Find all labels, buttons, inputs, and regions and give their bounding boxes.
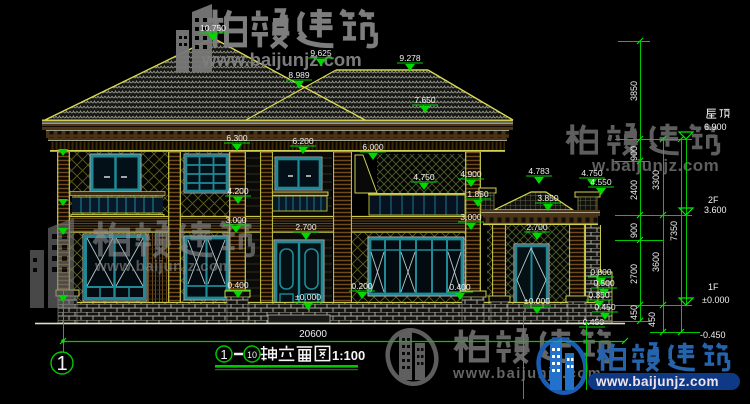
svg-text:6.000: 6.000 [362,142,384,152]
svg-text:3850: 3850 [629,81,639,101]
svg-text:1F: 1F [708,282,719,292]
svg-text:450: 450 [629,305,639,320]
svg-text:4.200: 4.200 [227,186,249,196]
svg-text:4.750: 4.750 [413,172,435,182]
svg-text:±0.000: ±0.000 [702,295,729,305]
svg-text:0.400: 0.400 [449,282,471,292]
svg-text:www.baijunjz.com: www.baijunjz.com [94,258,232,275]
svg-text:2400: 2400 [629,180,639,200]
svg-text:1: 1 [220,347,227,362]
svg-text:0.400: 0.400 [227,280,249,290]
svg-text:www.baijunjz.com: www.baijunjz.com [201,49,362,70]
svg-text:0.500: 0.500 [593,278,615,288]
svg-text:2F: 2F [708,195,719,205]
svg-text:1:100: 1:100 [332,348,365,363]
svg-text:7.650: 7.650 [414,95,436,105]
svg-text:900: 900 [629,223,639,238]
svg-text:6.300: 6.300 [226,133,248,143]
svg-text:9.625: 9.625 [310,48,332,58]
svg-text:2.700: 2.700 [526,222,548,232]
svg-text:4.783: 4.783 [528,166,550,176]
svg-text:0.350: 0.350 [588,290,610,300]
svg-text:900: 900 [629,146,639,161]
svg-text:8.989: 8.989 [288,70,310,80]
svg-text:0.800: 0.800 [590,267,612,277]
svg-text:4.550: 4.550 [590,177,612,187]
svg-text:±0.000: ±0.000 [524,296,550,306]
svg-text:0.450: 0.450 [594,302,616,312]
svg-text:1.850: 1.850 [467,189,489,199]
svg-text:20600: 20600 [299,329,327,340]
svg-text:2700: 2700 [629,264,639,284]
svg-text:9.278: 9.278 [399,53,421,63]
svg-text:3.000: 3.000 [460,212,482,222]
svg-text:1: 1 [56,353,67,375]
svg-text:2.700: 2.700 [295,222,317,232]
svg-text:3.850: 3.850 [537,193,559,203]
svg-text:7350: 7350 [669,221,679,241]
svg-text:4.900: 4.900 [460,169,482,179]
svg-text:450: 450 [647,312,657,327]
svg-text:3.600: 3.600 [704,205,727,215]
svg-text:3600: 3600 [651,252,661,272]
svg-text:3.000: 3.000 [225,215,247,225]
svg-text:-0.450: -0.450 [700,330,726,340]
svg-text:10: 10 [247,350,257,360]
svg-text:10.750: 10.750 [200,23,226,33]
svg-text:0.200: 0.200 [351,281,373,291]
svg-text:6.900: 6.900 [704,122,727,132]
svg-text:±0.000: ±0.000 [295,292,321,302]
svg-text:www.baijunjz.com: www.baijunjz.com [452,366,602,382]
svg-text:www.baijunjz.com: www.baijunjz.com [595,374,719,389]
svg-text:3300: 3300 [651,170,661,190]
svg-text:6.200: 6.200 [292,136,314,146]
